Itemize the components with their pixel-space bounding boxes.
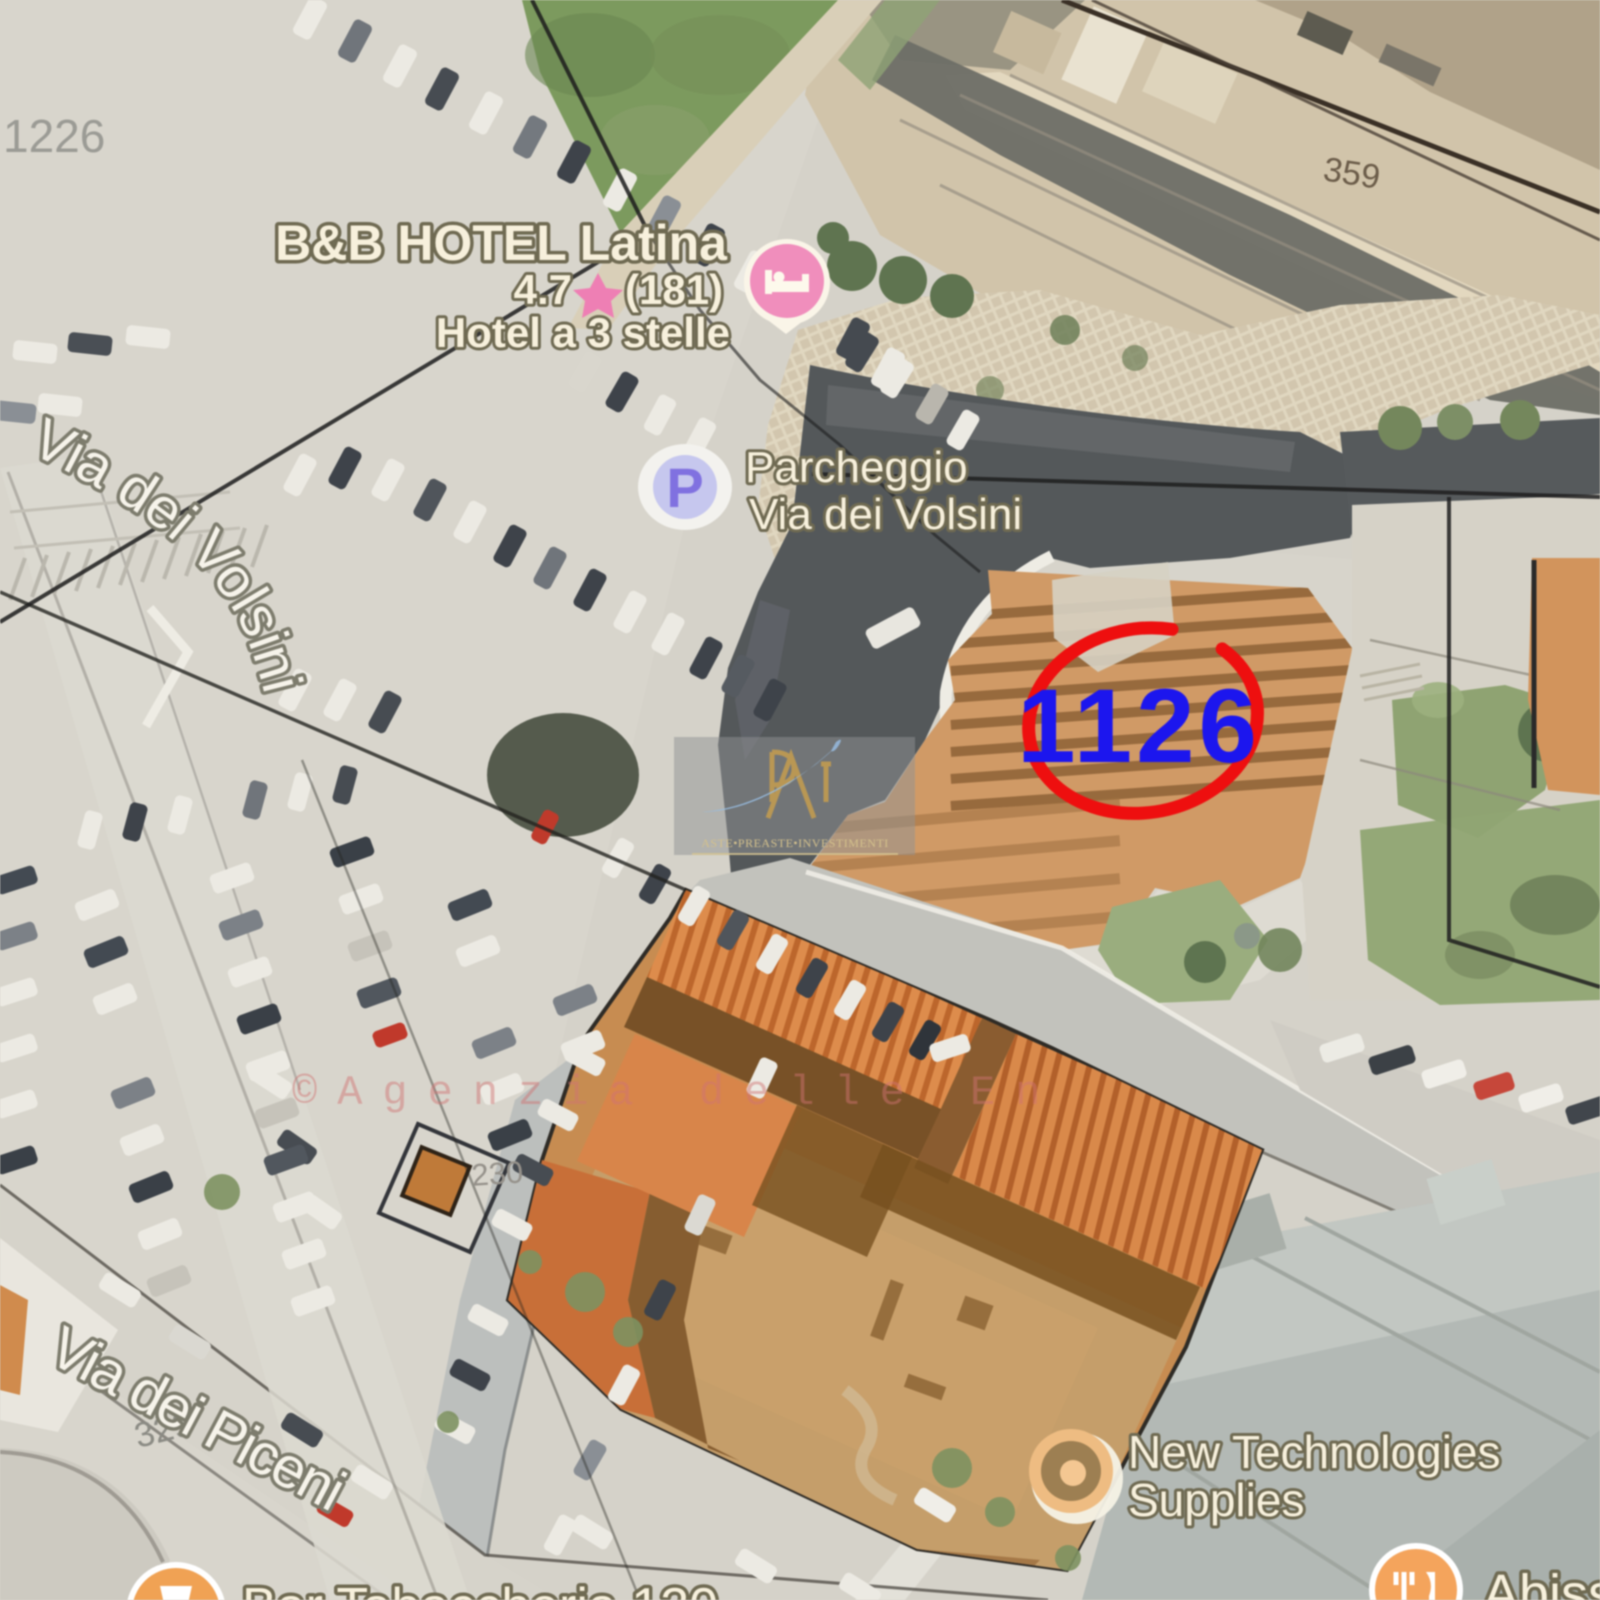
svg-text:Via dei Volsini: Via dei Volsini <box>749 490 1022 539</box>
svg-text:4.7: 4.7 <box>514 266 572 313</box>
svg-text:(181): (181) <box>625 266 723 313</box>
svg-text:Bar Tabaccheria 120: Bar Tabaccheria 120 <box>242 1578 718 1600</box>
svg-text:1226: 1226 <box>3 110 105 162</box>
svg-text:Abiss: Abiss <box>1483 1564 1600 1600</box>
svg-text:Parcheggio: Parcheggio <box>745 443 968 492</box>
svg-text:P: P <box>666 456 703 519</box>
svg-text:ASTE•PREASTE•INVESTIMENTI: ASTE•PREASTE•INVESTIMENTI <box>701 836 889 850</box>
svg-text:230: 230 <box>470 1154 524 1193</box>
svg-text:New Technologies: New Technologies <box>1128 1426 1501 1478</box>
svg-text:B&B HOTEL Latina: B&B HOTEL Latina <box>275 215 728 271</box>
svg-text:©Agenzia delle En: ©Agenzia delle En <box>292 1069 1060 1117</box>
svg-text:1126: 1126 <box>1017 668 1261 785</box>
svg-text:Hotel a 3 stelle: Hotel a 3 stelle <box>436 309 730 356</box>
svg-text:Supplies: Supplies <box>1128 1474 1304 1526</box>
